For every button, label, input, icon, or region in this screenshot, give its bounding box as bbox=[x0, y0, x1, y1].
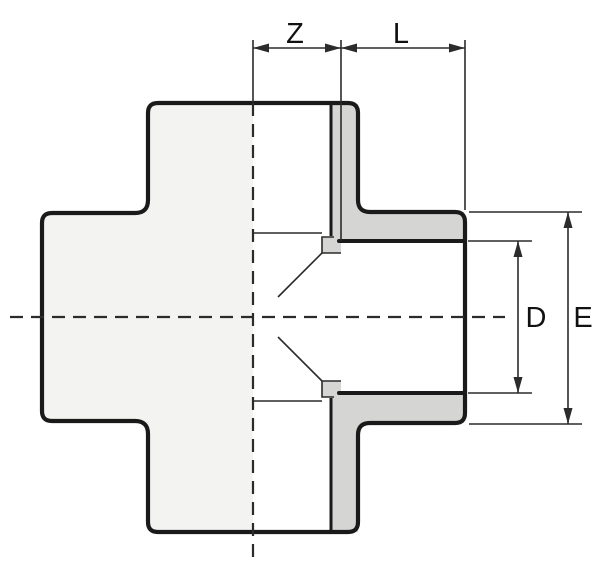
e-dimension-label: E bbox=[573, 302, 592, 334]
e-arrowhead-top bbox=[564, 212, 573, 228]
l-arrowhead-right bbox=[449, 44, 465, 53]
d-arrowhead-bottom bbox=[514, 377, 523, 393]
pipe-cross-fitting-drawing: Z L D E bbox=[0, 0, 604, 566]
l-dimension-label: L bbox=[393, 18, 409, 50]
e-arrowhead-bottom bbox=[564, 408, 573, 424]
z-arrowhead-left bbox=[253, 44, 269, 53]
z-dimension-label: Z bbox=[286, 18, 304, 50]
d-arrowhead-top bbox=[514, 241, 523, 257]
z-arrowhead-right bbox=[325, 44, 341, 53]
technical-drawing-canvas: Z L D E bbox=[0, 0, 604, 566]
section-wall-top bbox=[322, 104, 464, 253]
l-arrowhead-left bbox=[341, 44, 357, 53]
d-dimension-label: D bbox=[526, 302, 547, 334]
section-wall-bottom bbox=[322, 381, 464, 532]
